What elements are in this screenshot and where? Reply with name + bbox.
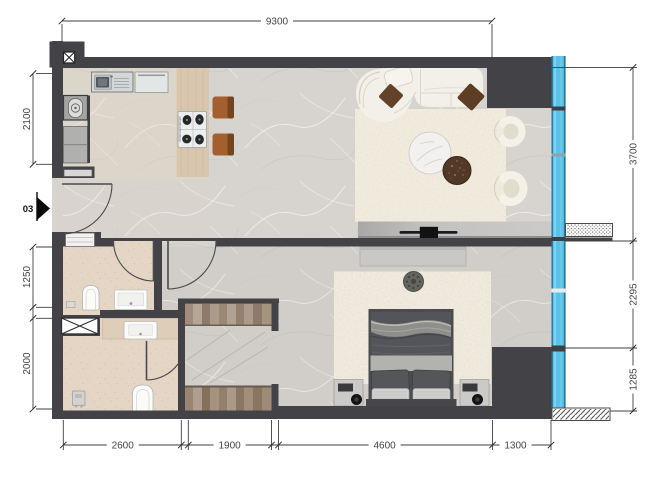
svg-text:2600: 2600 bbox=[112, 441, 135, 452]
svg-text:9300: 9300 bbox=[266, 17, 289, 28]
svg-text:1900: 1900 bbox=[218, 441, 241, 452]
svg-text:1300: 1300 bbox=[504, 441, 527, 452]
svg-text:4600: 4600 bbox=[373, 441, 396, 452]
svg-text:2295: 2295 bbox=[629, 283, 640, 306]
svg-text:2100: 2100 bbox=[22, 107, 33, 130]
svg-text:03: 03 bbox=[23, 204, 34, 215]
svg-text:1250: 1250 bbox=[22, 265, 33, 288]
svg-text:1285: 1285 bbox=[629, 368, 640, 391]
svg-text:2000: 2000 bbox=[22, 352, 33, 375]
svg-text:3700: 3700 bbox=[629, 142, 640, 165]
